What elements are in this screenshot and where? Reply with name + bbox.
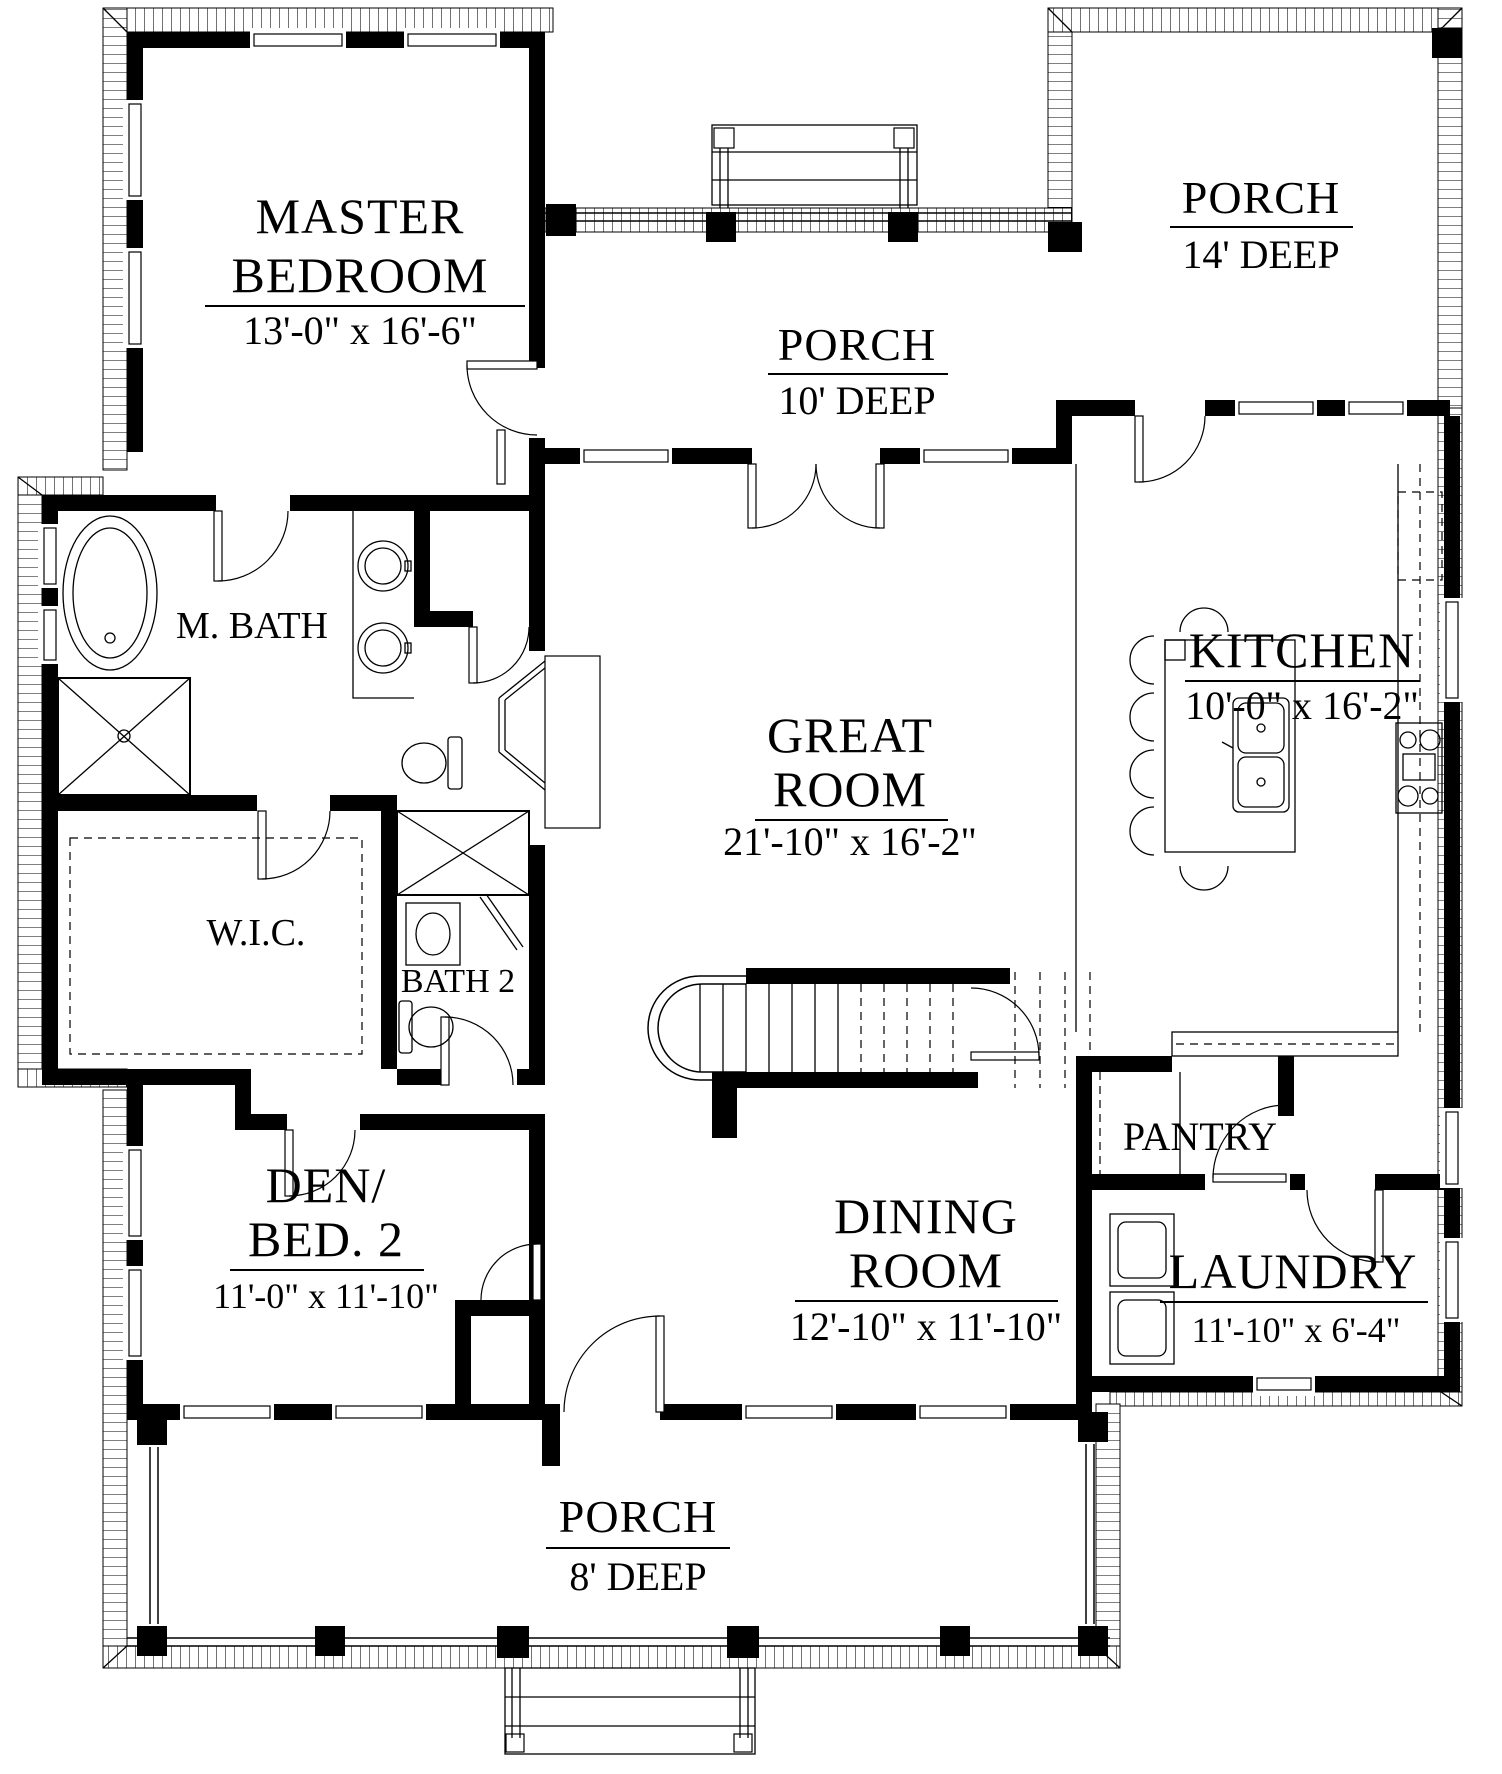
- den-label-1: DEN/: [266, 1157, 387, 1213]
- great-room-label-1: GREAT: [767, 707, 933, 763]
- window: [123, 248, 147, 348]
- window: [38, 524, 62, 588]
- master-bedroom-dims: 13'-0" x 16'-6": [243, 308, 477, 353]
- wic-door: [258, 811, 330, 879]
- rear-porch-depth: 10' DEEP: [778, 378, 935, 423]
- rear-entry-steps: [712, 125, 917, 208]
- window: [38, 606, 62, 664]
- great-room-dims: 21'-10" x 16'-2": [723, 819, 977, 864]
- toilet-closet-door: [469, 627, 529, 683]
- window: [1440, 1238, 1464, 1322]
- master-bedroom-label-2: BEDROOM: [231, 247, 488, 303]
- porch-double-door-left: [748, 464, 816, 528]
- rear-porch-label: PORCH: [778, 319, 936, 370]
- staircase: [648, 972, 1090, 1088]
- window: [1440, 598, 1464, 702]
- pantry-label: PANTRY: [1123, 1114, 1277, 1159]
- laundry-dims: 11'-10" x 6'-4": [1191, 1310, 1400, 1350]
- floor-plan: MASTER BEDROOM 13'-0" x 16'-6" PORCH 10'…: [0, 0, 1502, 1774]
- den-dims: 11'-0" x 11'-10": [213, 1276, 439, 1316]
- side-porch-depth: 14' DEEP: [1182, 232, 1339, 277]
- side-porch-label: PORCH: [1182, 172, 1340, 223]
- window: [742, 1400, 836, 1424]
- stair-closet-door: [971, 988, 1039, 1060]
- fireplace: [499, 656, 600, 828]
- toilet-closet-toilet: [402, 737, 462, 789]
- kitchen-label: KITCHEN: [1189, 622, 1415, 678]
- window: [250, 28, 346, 52]
- window: [920, 444, 1012, 468]
- window: [916, 1400, 1010, 1424]
- front-entry-steps: [505, 1668, 755, 1754]
- bath2-door: [441, 1017, 513, 1085]
- front-porch-depth: 8' DEEP: [569, 1554, 706, 1599]
- master-bedroom-label-1: MASTER: [256, 188, 465, 244]
- bath2-sink: [406, 903, 460, 965]
- window: [1345, 396, 1407, 420]
- master-bedroom-door: [467, 361, 537, 435]
- den-label-2: BED. 2: [248, 1211, 404, 1267]
- dining-dims: 12'-10" x 11'-10": [790, 1304, 1062, 1349]
- window: [123, 1266, 147, 1360]
- master-bath-door: [214, 511, 288, 581]
- window: [180, 1400, 274, 1424]
- master-bath-label: M. BATH: [176, 605, 328, 647]
- stair-railing: [648, 976, 746, 1080]
- window: [1440, 1108, 1464, 1188]
- front-door: [564, 1316, 664, 1412]
- window: [332, 1400, 426, 1424]
- master-tub: [63, 516, 157, 670]
- bath2-label: BATH 2: [401, 963, 515, 1000]
- range: [1396, 723, 1442, 813]
- dining-label-1: DINING: [834, 1188, 1018, 1244]
- porch-double-door-right: [816, 464, 884, 528]
- great-room-label-2: ROOM: [773, 761, 927, 817]
- hall-pocket-door: [497, 430, 505, 484]
- window: [1253, 1372, 1315, 1396]
- window: [404, 28, 500, 52]
- window: [123, 1146, 147, 1240]
- kitchen-porch-door: [1135, 416, 1205, 482]
- front-porch-label: PORCH: [559, 1491, 717, 1542]
- washer-dryer: [1110, 1214, 1174, 1364]
- master-shower: [58, 678, 190, 795]
- kitchen-counter: [1076, 464, 1442, 1056]
- window: [123, 100, 147, 200]
- dining-label-2: ROOM: [849, 1242, 1003, 1298]
- floor-plan-sheet: MASTER BEDROOM 13'-0" x 16'-6" PORCH 10'…: [0, 0, 1502, 1774]
- master-vanity: [353, 511, 414, 698]
- laundry-label: LAUNDRY: [1169, 1243, 1418, 1299]
- stair-treads: [700, 984, 953, 1072]
- window: [1235, 396, 1317, 420]
- wic-label: W.I.C.: [207, 912, 306, 954]
- kitchen-dims: 10'-0" x 16'-2": [1185, 683, 1419, 728]
- window: [580, 444, 672, 468]
